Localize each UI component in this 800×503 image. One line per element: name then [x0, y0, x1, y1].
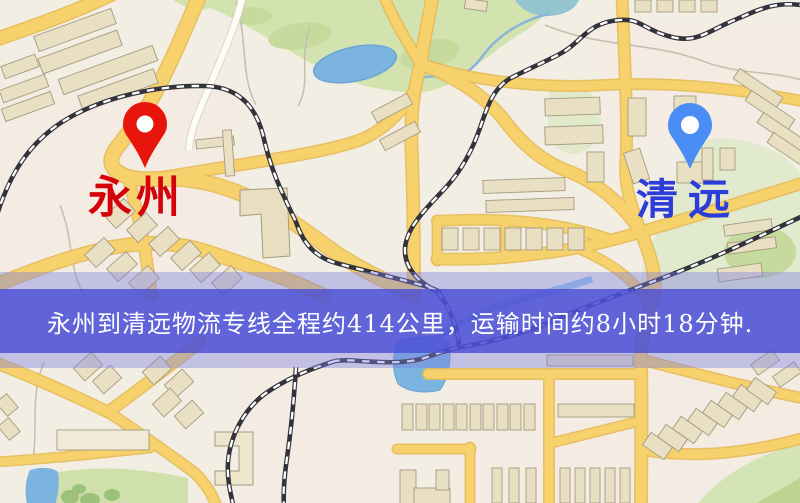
map-image: 永州 清远 永州到清远物流专线全程约414公里，运输时间约8小时18分钟. — [0, 0, 800, 503]
map-canvas — [0, 0, 800, 503]
route-banner: 永州到清远物流专线全程约414公里，运输时间约8小时18分钟. — [0, 289, 800, 353]
route-banner-text: 永州到清远物流专线全程约414公里，运输时间约8小时18分钟. — [0, 304, 753, 339]
origin-city-label: 永州 — [88, 176, 184, 220]
destination-city-label: 清远 — [636, 179, 740, 221]
